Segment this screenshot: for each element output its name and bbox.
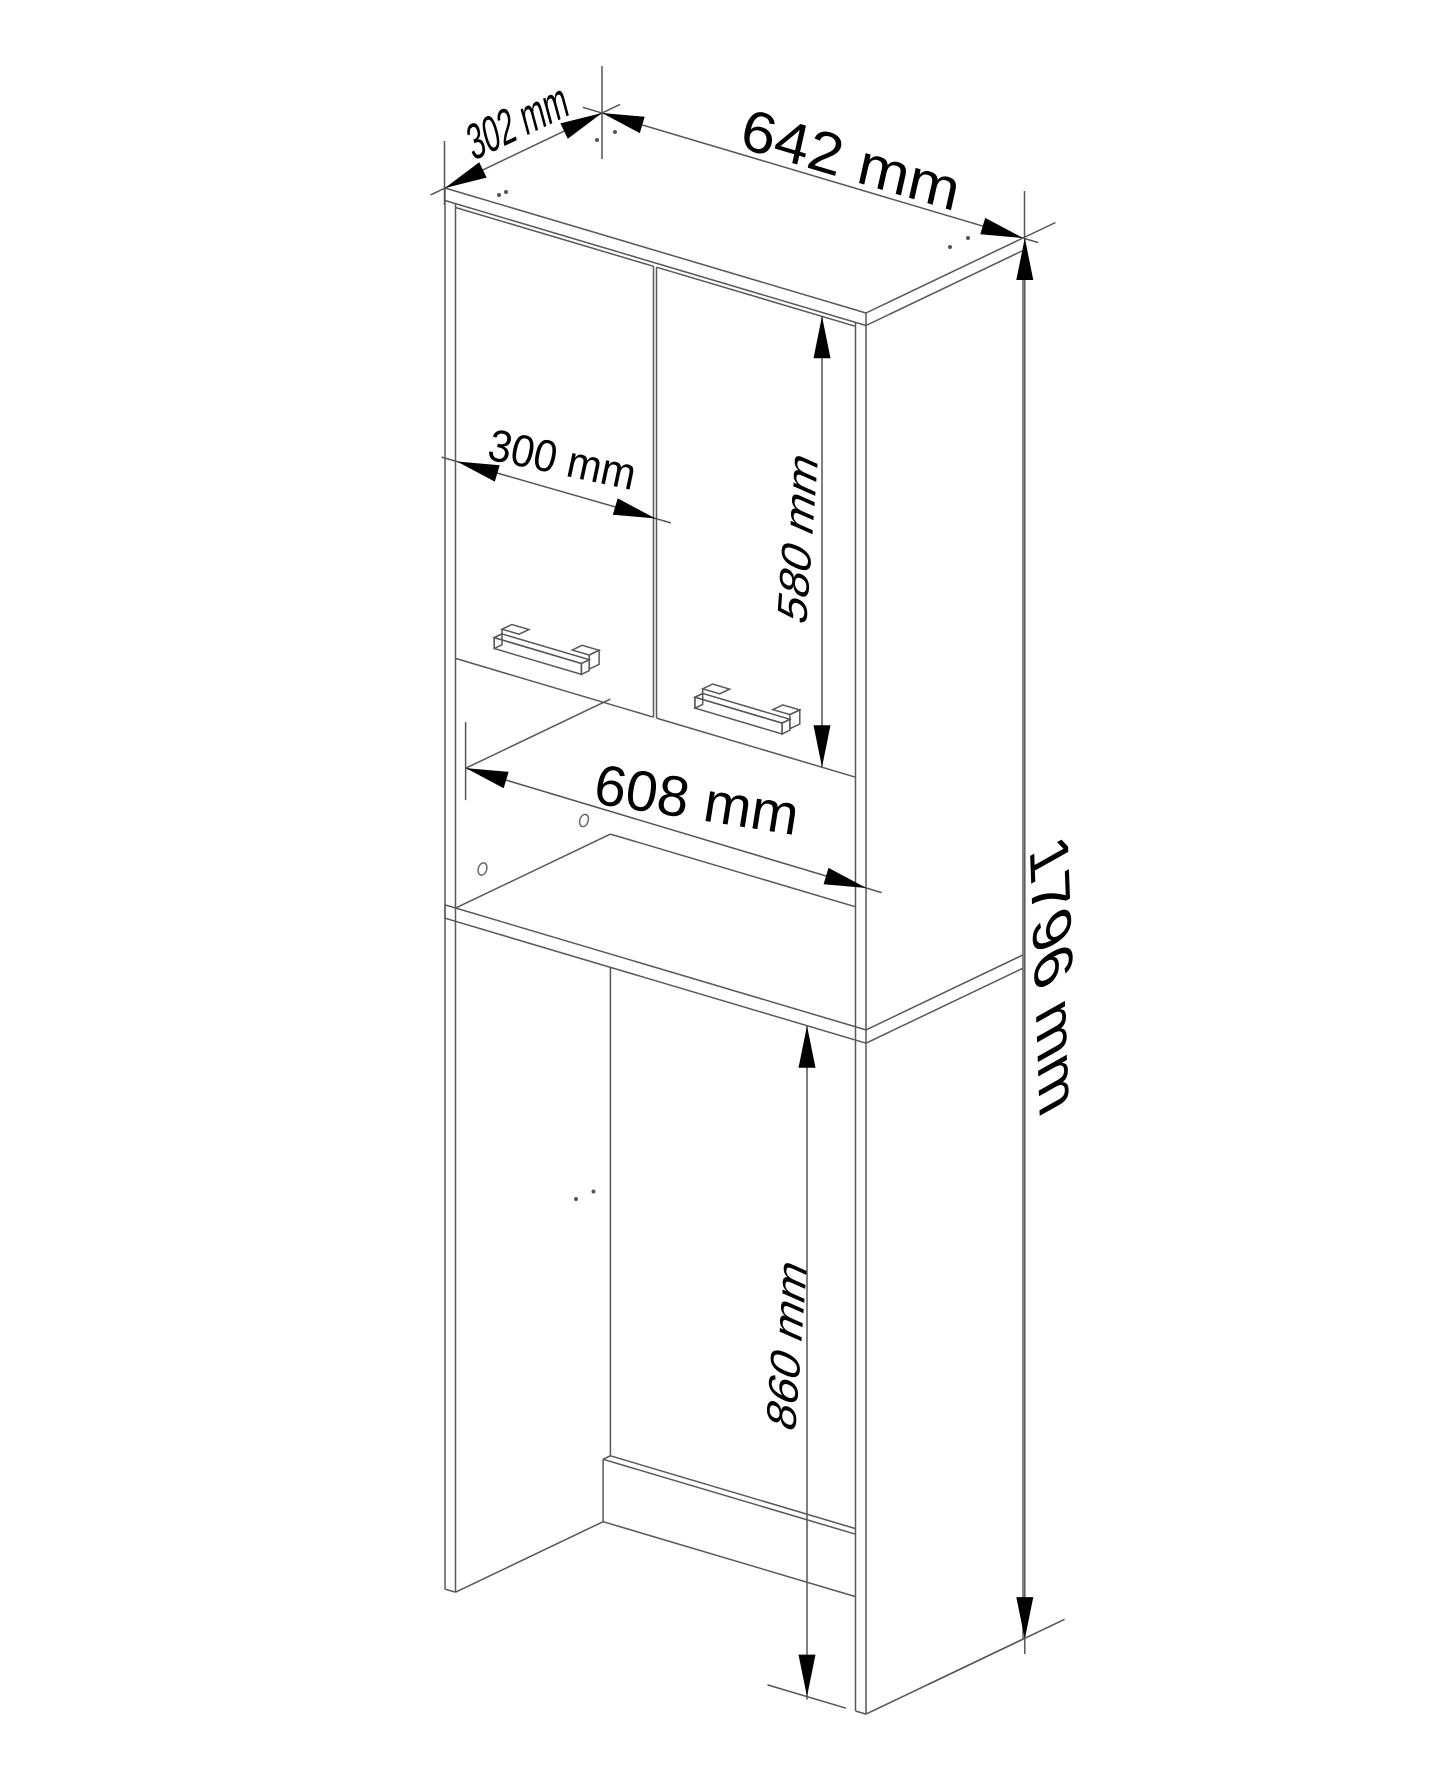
svg-text:608 mm: 608 mm: [590, 753, 803, 848]
svg-text:302 mm: 302 mm: [461, 71, 573, 172]
svg-text:300 mm: 300 mm: [484, 420, 641, 500]
svg-text:580 mm: 580 mm: [769, 444, 827, 631]
svg-text:642 mm: 642 mm: [735, 95, 966, 223]
svg-text:1796 mm: 1796 mm: [1018, 824, 1089, 1127]
